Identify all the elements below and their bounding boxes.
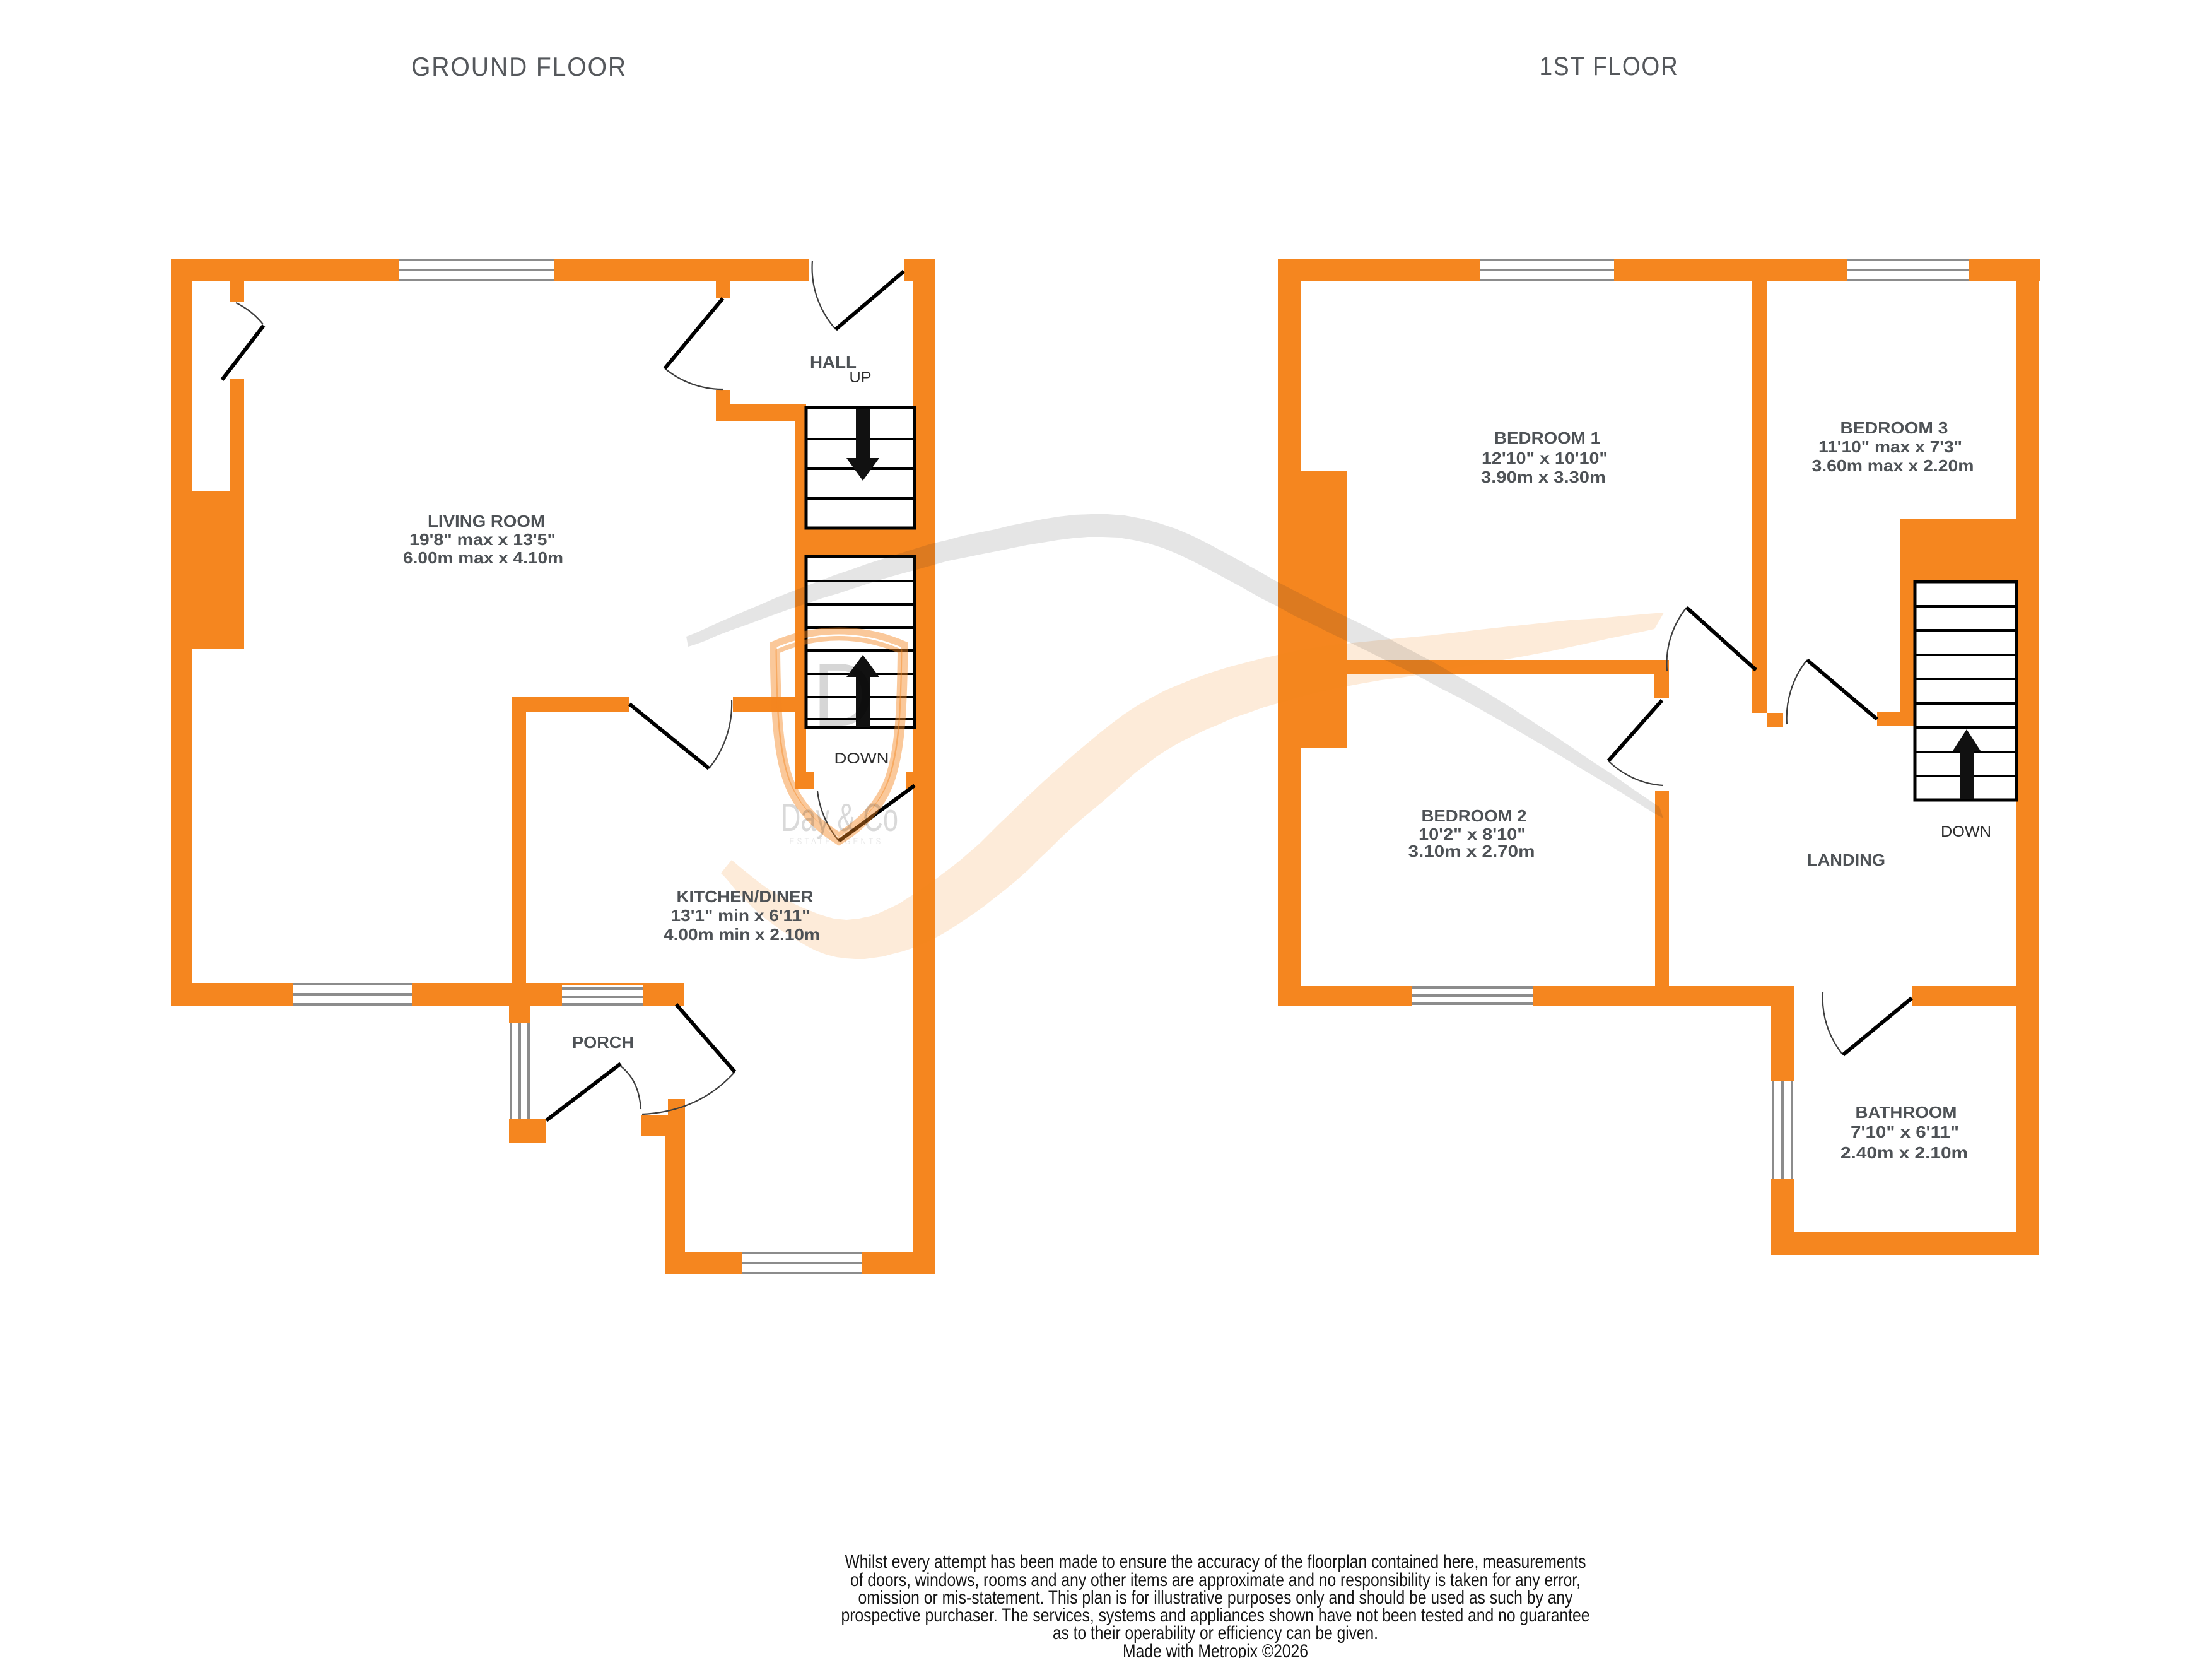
svg-text:3.10m x 2.70m: 3.10m x 2.70m xyxy=(1408,842,1535,861)
svg-text:LIVING ROOM: LIVING ROOM xyxy=(428,512,545,531)
svg-text:3.90m x 3.30m: 3.90m x 3.30m xyxy=(1481,467,1606,486)
svg-text:3.60m max x 2.20m: 3.60m max x 2.20m xyxy=(1812,456,1974,475)
svg-text:UP: UP xyxy=(850,369,872,386)
svg-text:7'10" x 6'11": 7'10" x 6'11" xyxy=(1851,1122,1959,1141)
svg-text:ESTATE AGENTS: ESTATE AGENTS xyxy=(790,836,884,846)
svg-text:11'10" max x 7'3": 11'10" max x 7'3" xyxy=(1818,437,1962,456)
svg-text:Made with Metropix ©2026: Made with Metropix ©2026 xyxy=(1123,1641,1308,1658)
svg-text:BEDROOM 1: BEDROOM 1 xyxy=(1494,428,1600,447)
svg-text:PORCH: PORCH xyxy=(572,1033,634,1052)
svg-text:1ST FLOOR: 1ST FLOOR xyxy=(1540,51,1679,81)
svg-text:LANDING: LANDING xyxy=(1807,850,1885,869)
svg-text:DOWN: DOWN xyxy=(834,750,889,767)
svg-text:19'8" max x 13'5": 19'8" max x 13'5" xyxy=(409,530,556,549)
svg-text:12'10" x 10'10": 12'10" x 10'10" xyxy=(1482,449,1608,467)
svg-text:2.40m x 2.10m: 2.40m x 2.10m xyxy=(1840,1143,1968,1162)
svg-text:4.00m min x 2.10m: 4.00m min x 2.10m xyxy=(664,925,820,944)
svg-text:D: D xyxy=(813,645,874,745)
svg-text:DOWN: DOWN xyxy=(1941,823,1991,840)
svg-text:10'2" x 8'10": 10'2" x 8'10" xyxy=(1419,825,1526,844)
svg-text:GROUND FLOOR: GROUND FLOOR xyxy=(411,52,627,81)
svg-text:Day & Co: Day & Co xyxy=(781,796,898,840)
svg-text:BATHROOM: BATHROOM xyxy=(1856,1103,1957,1122)
svg-text:BEDROOM 3: BEDROOM 3 xyxy=(1840,418,1948,437)
svg-text:6.00m max x 4.10m: 6.00m max x 4.10m xyxy=(403,548,563,567)
svg-text:KITCHEN/DINER: KITCHEN/DINER xyxy=(677,887,814,906)
svg-text:13'1" min x 6'11": 13'1" min x 6'11" xyxy=(671,906,810,925)
svg-text:BEDROOM 2: BEDROOM 2 xyxy=(1422,806,1527,825)
